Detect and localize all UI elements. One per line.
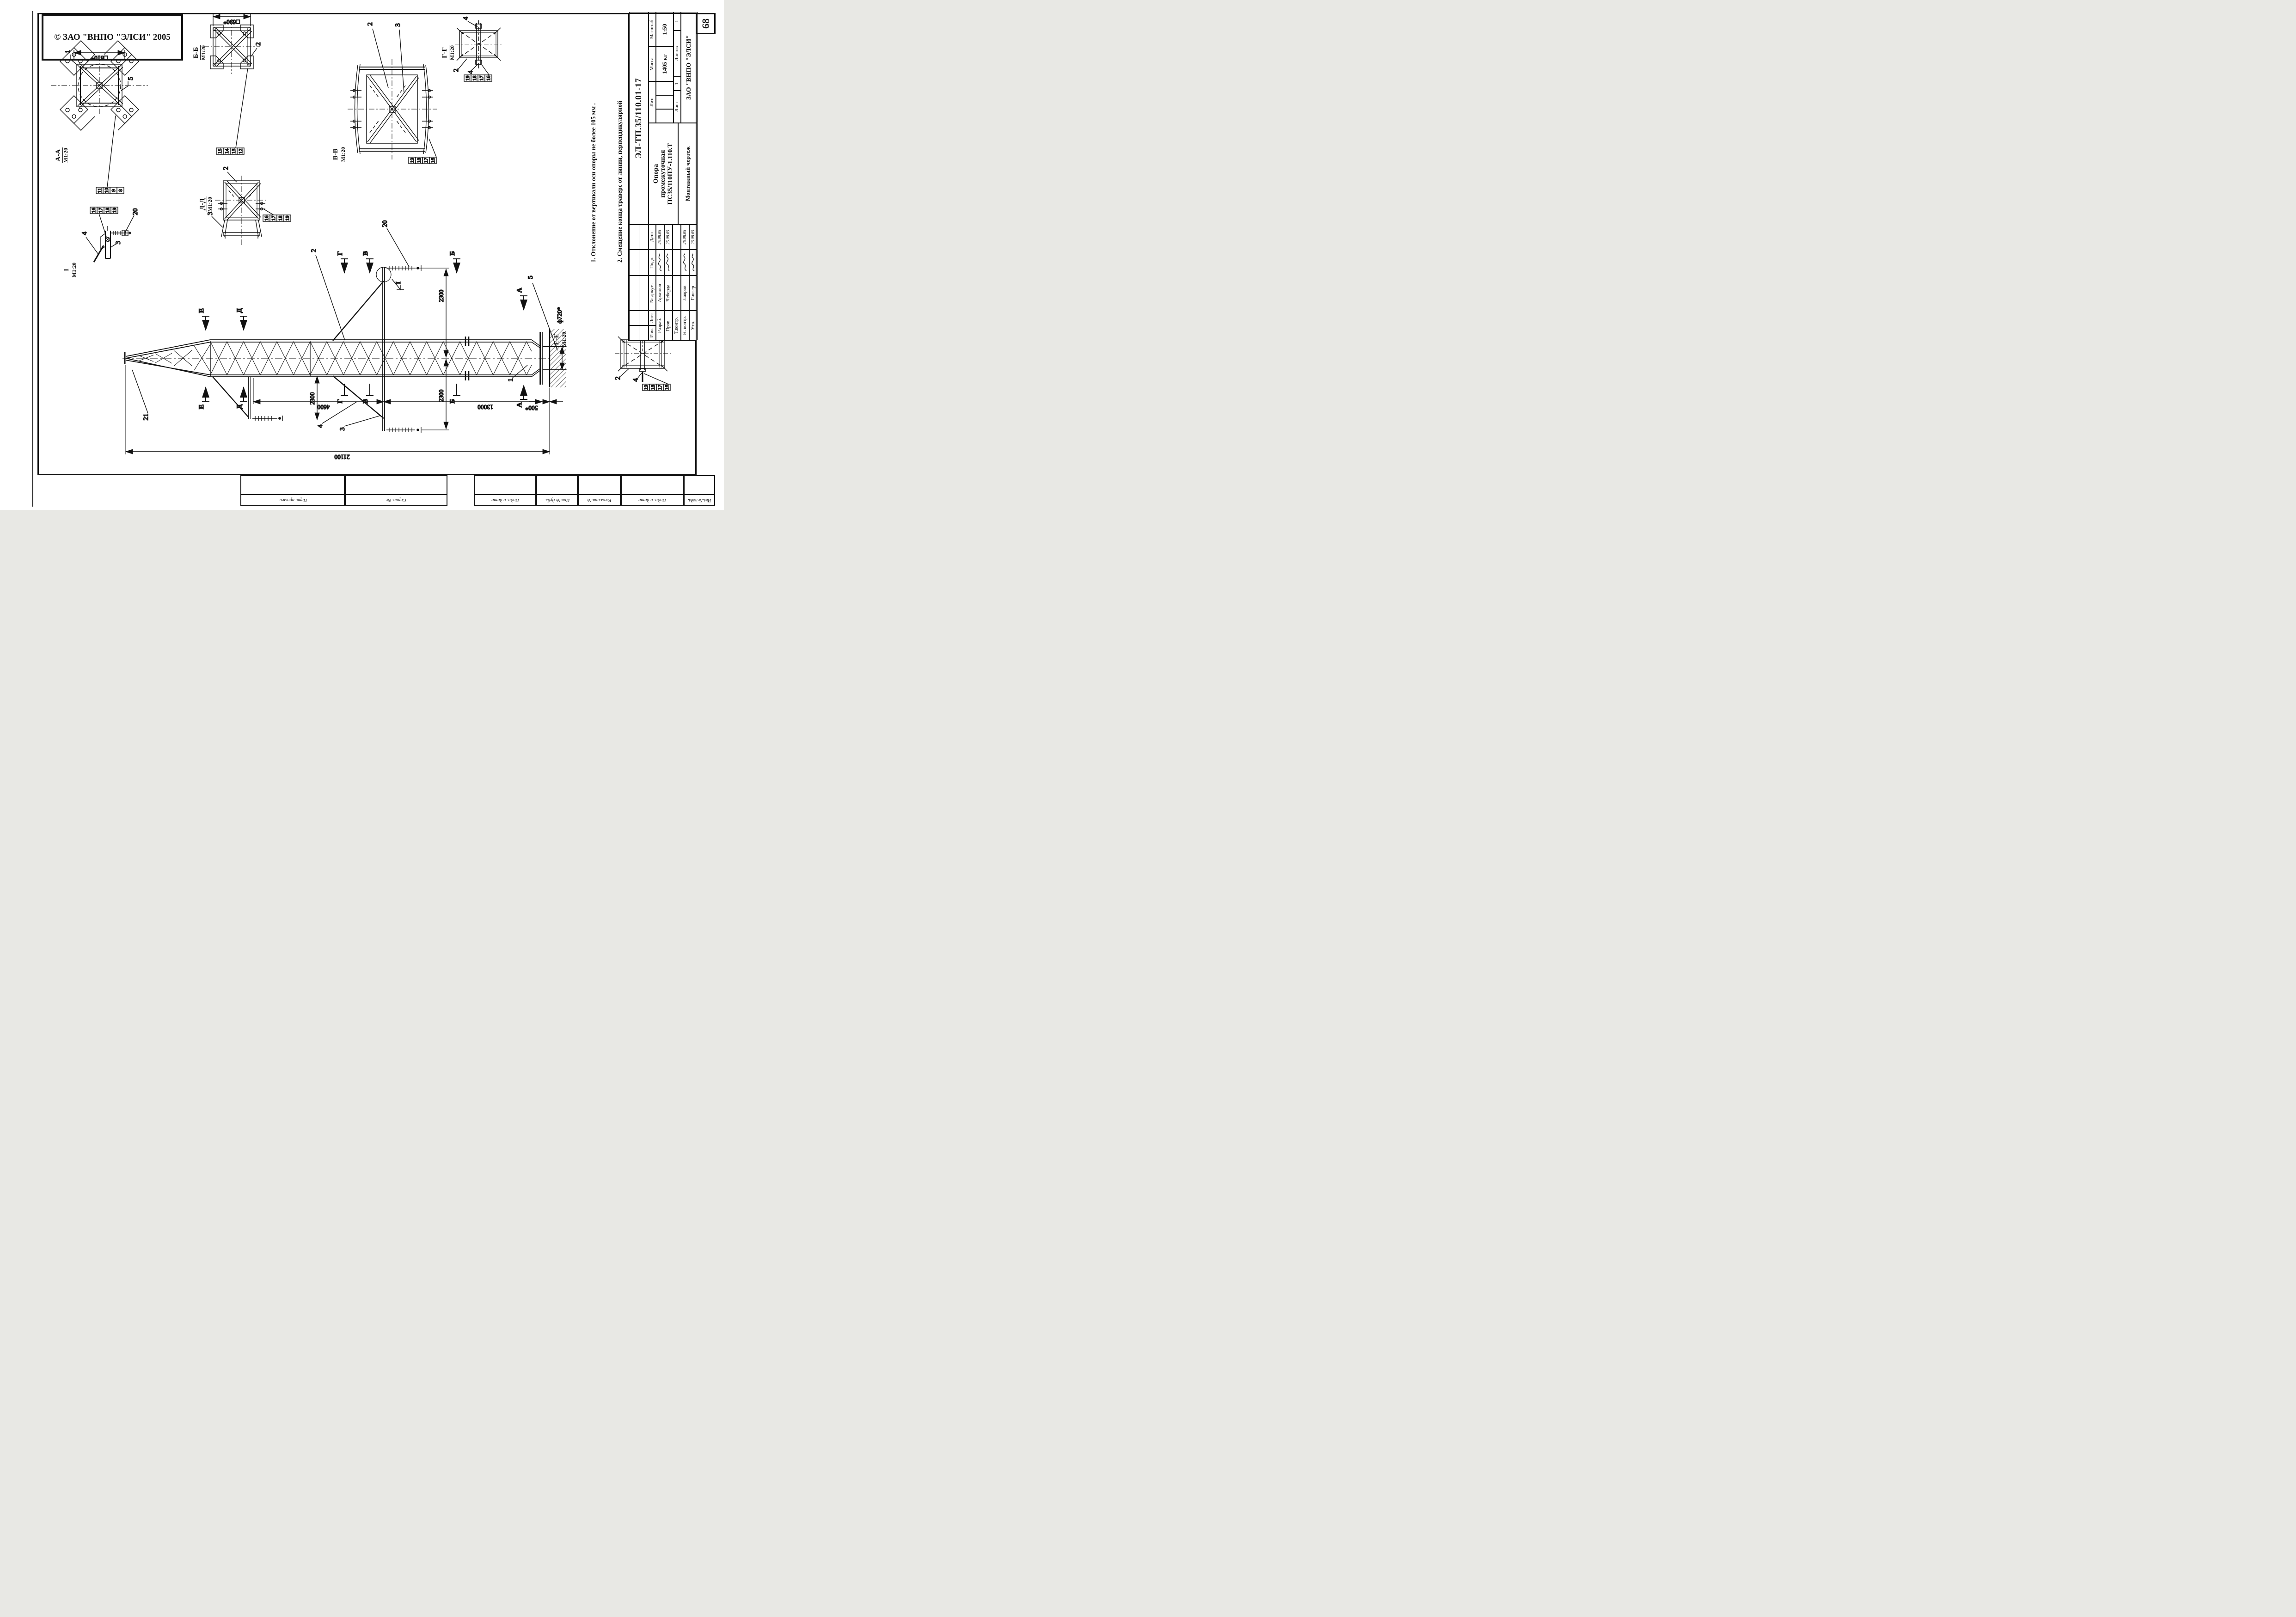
tower-elevation: Е Е Д Д Г Г В В Б Б А А: [122, 220, 567, 461]
dim-810: □810*: [91, 55, 107, 61]
ee-part-1: 18: [650, 385, 656, 390]
note-1: 1. Отклонение от вертикали оси опоры не …: [589, 37, 598, 263]
notes-block: 1. Отклонение от вертикали оси опоры не …: [571, 37, 608, 263]
tb-date-4: 26.08.05: [689, 225, 698, 250]
view-vv-scale: М1:20: [340, 147, 347, 162]
view-gg-name: Г-Г: [441, 45, 449, 60]
aa-part-2: 9: [111, 189, 116, 192]
tb-name-1: Чеберда: [664, 276, 673, 311]
vv-table-leader: [429, 139, 436, 157]
view-ee-scale: М1:20: [561, 332, 568, 347]
tb-lit-3: [656, 81, 673, 95]
section-e-top: Е: [198, 308, 205, 313]
i-part-3: 19: [112, 208, 117, 213]
label-view-vv: В-В М1:20: [332, 138, 345, 171]
hanger-left: [213, 377, 282, 421]
stamp-sprav-no: Справ. №: [345, 475, 447, 506]
insulator-bottom: [386, 427, 421, 433]
dim-690: □690*: [223, 18, 239, 25]
dim-2300-up: 2300: [438, 289, 445, 302]
tb-doc-type: Монтажный чертеж: [678, 123, 698, 225]
label-view-gg: Г-Г М1:20: [441, 36, 454, 69]
callout-2: 2: [367, 22, 374, 26]
tb-name-line2: промежуточная: [660, 150, 667, 198]
tb-lit-2: [656, 95, 673, 109]
view-vv: 2 3 19 18 17 16: [348, 22, 437, 164]
tb-date-2: [673, 225, 681, 250]
tb-h-mass: Масса: [649, 47, 656, 81]
title-block: Изм. Лист № докум. Подп. Дата Разраб. Ар…: [628, 13, 697, 341]
label-view-i: I М1:20: [63, 253, 76, 287]
ee-leader-4: [637, 373, 642, 379]
tb-sheet-value: 1: [673, 77, 681, 91]
callout-4: 4: [632, 378, 639, 382]
vv-part-0: 19: [410, 158, 415, 163]
dd-parts-table: 16 17 18 19: [263, 215, 291, 221]
callout-2: 2: [614, 376, 622, 380]
gg-leader-4b: [471, 63, 479, 70]
dim-2300-left: 2300: [309, 392, 316, 404]
drawing-sheet: © ЗАО "ВНПО "ЭЛСИ" 2005: [0, 0, 724, 510]
i-leader-20: [125, 215, 134, 233]
callout-5: 5: [527, 276, 534, 279]
dd-part-1: 17: [271, 215, 276, 221]
section-g-bot: Г: [337, 399, 344, 404]
tb-sig-4: [689, 250, 698, 276]
ee-part-2: 17: [657, 385, 663, 390]
detail-i-mark: I: [395, 282, 402, 284]
view-dd: 2 3 16 17 18 19: [207, 166, 291, 245]
dim-4600: 4600: [317, 404, 330, 410]
section-d-bot: Д: [236, 404, 243, 409]
stamp-vzam-inv: Взам.инв.№: [578, 475, 621, 506]
ee-part-3: 16: [664, 385, 670, 390]
aa-part-0: 11: [97, 188, 103, 193]
stamp-label: Инв.№ дубл.: [545, 497, 570, 502]
tb-h-sheet: Лист: [673, 91, 681, 123]
view-ee-name: Е-Е: [553, 332, 561, 347]
tb-h-lit: Лит.: [649, 81, 656, 123]
dim-500: 500*: [525, 404, 538, 411]
section-v-top: В: [362, 251, 369, 256]
i-part-1: 17: [98, 208, 104, 213]
gg-part-3: 16: [486, 75, 491, 81]
stamp-podp-data-2: Подп. и дата: [621, 475, 684, 506]
tb-h-doc: № докум.: [649, 276, 656, 311]
i-rod: [94, 245, 104, 262]
dim-21100: 21100: [334, 453, 349, 460]
tb-sig-0: [656, 250, 664, 276]
stamp-inv-dubl: Инв.№ дубл.: [536, 475, 578, 506]
section-a-bot: А: [516, 402, 523, 407]
vv-part-1: 18: [416, 158, 422, 163]
callout-2: 2: [255, 42, 262, 46]
label-view-aa: А-А М1:20: [55, 139, 67, 172]
callout-1: 1: [64, 50, 72, 54]
i-parts-table: 16 17 18 19: [90, 207, 118, 214]
gg-part-0: 19: [465, 75, 471, 81]
vv-part-2: 17: [423, 158, 429, 163]
section-b-bot: Б: [449, 399, 456, 404]
dd-part-0: 16: [264, 215, 269, 221]
section-v-bot: В: [362, 399, 369, 404]
tb-name-line1: Опора: [653, 164, 660, 184]
bb-part-0: 15: [217, 148, 223, 154]
dim-2300-dn: 2300: [438, 389, 445, 402]
callout-2: 2: [310, 249, 318, 252]
view-i-scale: М1:20: [71, 263, 78, 277]
view-dd-name: Д-Д: [199, 196, 207, 212]
label-view-dd: Д-Д М1:20: [199, 188, 212, 221]
tb-role-4: Утв.: [689, 311, 698, 340]
ee-part-0: 19: [643, 385, 649, 390]
stamp-podp-data-1: Подп. и дата: [474, 475, 536, 506]
view-aa-name: А-А: [55, 147, 63, 164]
callout-4: 4: [317, 424, 324, 428]
page-number-box: 68: [696, 13, 716, 34]
tb-mass-value: 1405 кг: [656, 47, 673, 81]
view-aa-scale: М1:20: [63, 148, 69, 163]
dd-leader-3: [212, 216, 223, 227]
i-part-2: 18: [105, 208, 110, 213]
dd-table-leader: [263, 209, 274, 215]
bb-leader-2: [251, 48, 257, 56]
vv-part-3: 16: [430, 158, 436, 163]
section-b-top: Б: [449, 251, 456, 256]
callout-2: 2: [222, 166, 230, 170]
section-ticks: [202, 259, 527, 401]
gg-parts-table: 19 18 17 16: [464, 75, 492, 81]
signature: [692, 254, 694, 271]
tb-h-list: Лист: [649, 311, 656, 325]
bb-part-3: 12: [238, 149, 244, 154]
note-2: 2. Смещение конца траверс от линии, перп…: [615, 37, 624, 263]
vv-parts-table: 19 18 17 16: [409, 157, 436, 164]
tb-sheets-value: 1: [673, 12, 681, 31]
callout-3: 3: [115, 241, 122, 245]
view-bb: □690* 2 15 14 13 12: [203, 14, 262, 154]
ee-leader-2: [619, 369, 629, 377]
view-gg: 4 2 4 19 18 17 16: [453, 17, 502, 81]
view-i: 20 4 3 16 17 18 19: [81, 207, 139, 262]
bb-table-leader: [236, 68, 248, 148]
callout-4: 4: [81, 232, 88, 235]
vv-leader-2: [373, 29, 388, 88]
view-bb-name: Б-Б: [192, 45, 201, 61]
callout-21: 21: [142, 414, 150, 421]
stamp-perv-primen: Перв. примен.: [240, 475, 345, 506]
i-leader-4: [86, 237, 98, 254]
tb-sig-3: [681, 250, 689, 276]
callout-4: 4: [467, 70, 474, 74]
tb-h-date: Дата: [649, 225, 656, 250]
tb-rev-split: [639, 225, 639, 340]
ee-pipe: [640, 337, 645, 382]
tb-scale-value: 1:50: [656, 12, 673, 47]
callout-1: 1: [507, 378, 514, 382]
ee-parts-table: 19 18 17 16: [643, 384, 670, 391]
view-bb-scale: М1:20: [201, 45, 207, 60]
callout-5: 5: [127, 77, 135, 80]
label-view-ee: Е-Е М1:20: [553, 323, 566, 356]
elevation-dims: [126, 268, 567, 454]
ee-table-leader: [644, 374, 669, 385]
callout-20: 20: [381, 220, 389, 227]
view-i-name: I: [63, 267, 71, 273]
callout-3: 3: [394, 23, 402, 27]
tb-date-0: 25.08.05: [656, 225, 664, 250]
stamp-label: Взам.инв.№: [587, 497, 612, 502]
tb-name-line3: ПС35/110ПУ-1.110.Т: [667, 143, 674, 204]
section-letters: Е Е Д Д Г Г В В Б Б А А: [198, 251, 523, 409]
stamp-label: Справ. №: [386, 497, 406, 502]
tb-role-1: Пров.: [664, 311, 673, 340]
tb-h-sign: Подп.: [649, 250, 656, 276]
section-g-top: Г: [337, 251, 344, 256]
tb-role-2: Т.контр.: [673, 311, 681, 340]
stamp-label: Перв. примен.: [278, 497, 307, 502]
tb-name-3: Лавров: [681, 276, 689, 311]
tb-h-izm: Изм.: [649, 325, 656, 340]
dim-13000: 13000: [478, 404, 493, 410]
stamp-label: Подп. и дата: [638, 497, 666, 502]
tb-h-scale: Масштаб: [649, 12, 656, 47]
gg-part-1: 18: [472, 75, 478, 81]
signature: [684, 254, 686, 271]
tb-role-0: Разраб.: [656, 311, 664, 340]
aa-parts-table: 11 10 9 8: [96, 187, 124, 194]
aa-part-3: 8: [118, 189, 123, 192]
tb-role-3: Н. контр.: [681, 311, 689, 340]
tb-doc-number: ЭЛ-ТП.35/110.01-17: [629, 12, 649, 225]
tb-h-sheets: Листов: [673, 31, 681, 77]
view-vv-name: В-В: [332, 147, 340, 162]
tb-lit-1: [656, 109, 673, 123]
tb-company: ЗАО "ВНПО "ЭЛСИ": [681, 12, 698, 123]
stamp-inv-podl: Инв.№ подл.: [684, 475, 715, 506]
signature: [658, 254, 661, 271]
callout-3: 3: [339, 427, 346, 431]
label-view-bb: Б-Б М1:20: [192, 36, 205, 69]
bb-parts-table: 15 14 13 12: [216, 148, 244, 154]
stamp-label: Инв.№ подл.: [688, 498, 711, 502]
view-dd-scale: М1:20: [207, 197, 214, 212]
tb-product-name: Опора промежуточная ПС35/110ПУ-1.110.Т: [649, 123, 678, 225]
tb-sig-1: [664, 250, 673, 276]
dd-part-2: 18: [278, 215, 283, 221]
section-d-top: Д: [236, 308, 243, 313]
section-e-bot: Е: [198, 404, 205, 409]
tb-name-0: Архипов: [656, 276, 664, 311]
tb-name-4: Гинзер: [689, 276, 698, 311]
gg-part-2: 17: [479, 75, 484, 81]
gg-leader-2: [458, 59, 467, 69]
traverse-main: [333, 267, 391, 431]
gg-table-leader: [482, 65, 489, 75]
callout-20: 20: [132, 208, 139, 215]
aa-part-1: 10: [104, 188, 110, 193]
tb-sig-2: [673, 250, 681, 276]
i-table-leader: [99, 214, 106, 237]
page-number: 68: [700, 18, 712, 29]
tb-date-3: 26.08.05: [681, 225, 689, 250]
tb-name-2: [673, 276, 681, 311]
stamp-label: Подп. и дата: [491, 497, 519, 502]
bb-part-1: 14: [224, 148, 230, 154]
i-part-0: 16: [91, 208, 97, 213]
bb-part-2: 13: [231, 148, 237, 154]
tb-date-1: 25.08.05: [664, 225, 673, 250]
callout-4: 4: [462, 17, 470, 20]
signature: [667, 254, 669, 271]
view-gg-scale: М1:20: [449, 45, 456, 60]
vv-leader-3: [399, 30, 404, 92]
dim-720: ф720*: [556, 307, 563, 324]
section-a-top: А: [516, 288, 523, 293]
dd-part-3: 19: [285, 215, 290, 221]
